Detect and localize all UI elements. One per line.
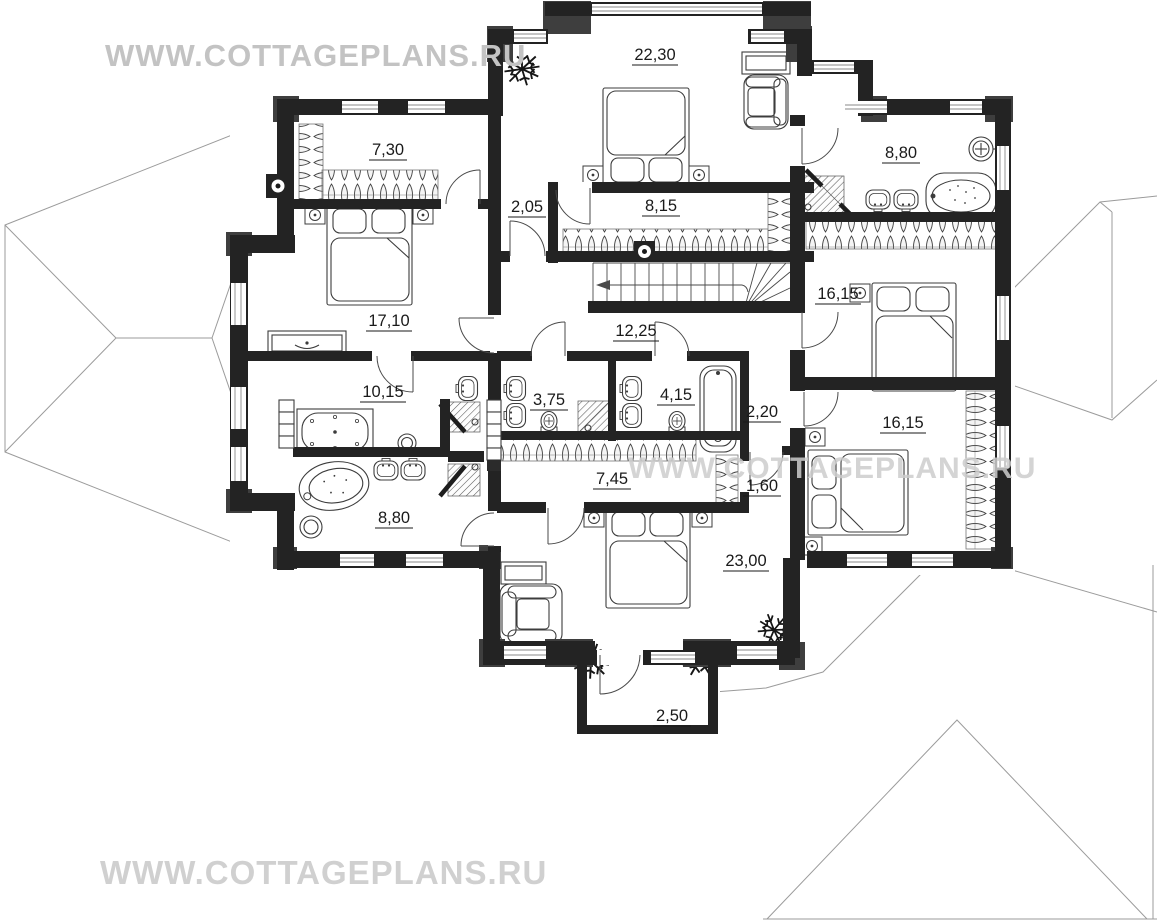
armchair (500, 584, 562, 644)
room-label-hall: 12,25 (615, 322, 656, 340)
floor-plan-drawing: 22,30 7,30 8,80 2,05 8,15 17,10 16,15 12… (0, 0, 1157, 921)
room-label-bathroom-center-left: 3,75 (533, 391, 565, 409)
toilet (669, 412, 685, 435)
room-label-bedroom-right-upper: 16,15 (817, 285, 858, 303)
room-label-wardrobe-center: 8,15 (645, 197, 677, 215)
round-washbasin (300, 516, 322, 538)
room-label-bedroom-top: 22,30 (634, 46, 675, 64)
room-label-bathroom-top-right: 8,80 (885, 144, 917, 162)
washbasin (894, 190, 918, 212)
tv-console (742, 52, 790, 74)
duct-column (279, 400, 294, 448)
watermark-top: WWW.COTTAGEPLANS.RU (105, 38, 526, 73)
washbasin (866, 190, 890, 212)
floor-plan-page: 22,30 7,30 8,80 2,05 8,15 17,10 16,15 12… (0, 0, 1157, 921)
nightstand (689, 166, 709, 184)
nightstand (583, 166, 603, 184)
room-label-wardrobe-bottom: 7,45 (596, 470, 628, 488)
washbasin (504, 404, 526, 428)
duct-column (487, 400, 501, 471)
room-label-bathroom-left-lower: 8,80 (378, 509, 410, 527)
washbasin (504, 377, 526, 401)
bed (606, 508, 690, 608)
washbasin (374, 459, 398, 481)
room-label-bathroom-left-upper: 10,15 (362, 383, 403, 401)
closet-strip (768, 187, 792, 254)
tv-console (501, 562, 546, 584)
watermark-bottom: WWW.COTTAGEPLANS.RU (100, 854, 547, 891)
room-label-vestibule: 2,05 (511, 198, 543, 216)
bed (872, 283, 956, 391)
room-label-balcony: 2,50 (656, 707, 688, 725)
washbasin (456, 377, 478, 401)
chimney-block (634, 241, 655, 262)
room-label-wardrobe-top-left: 7,30 (372, 141, 404, 159)
room-label-bathroom-center-right: 4,15 (660, 386, 692, 404)
bed (327, 205, 412, 305)
toilet (541, 412, 557, 435)
cabinet (805, 428, 825, 446)
washbasin (401, 459, 425, 481)
shower (578, 401, 610, 434)
washbasin (620, 404, 642, 428)
armchair (744, 75, 788, 129)
room-label-bedroom-right-lower: 16,15 (882, 414, 923, 432)
watermark-middle: WWW.COTTAGEPLANS.RU (628, 452, 1036, 485)
room-label-corridor-upper: 2,20 (746, 403, 778, 421)
closet-strip (322, 170, 438, 203)
chimney-block (266, 174, 290, 198)
room-label-bedroom-left: 17,10 (368, 312, 409, 330)
washbasin (620, 377, 642, 401)
room-label-bedroom-bottom: 23,00 (725, 552, 766, 570)
bed (603, 88, 689, 185)
closet-strip (806, 221, 996, 249)
closet-strip (299, 124, 323, 202)
